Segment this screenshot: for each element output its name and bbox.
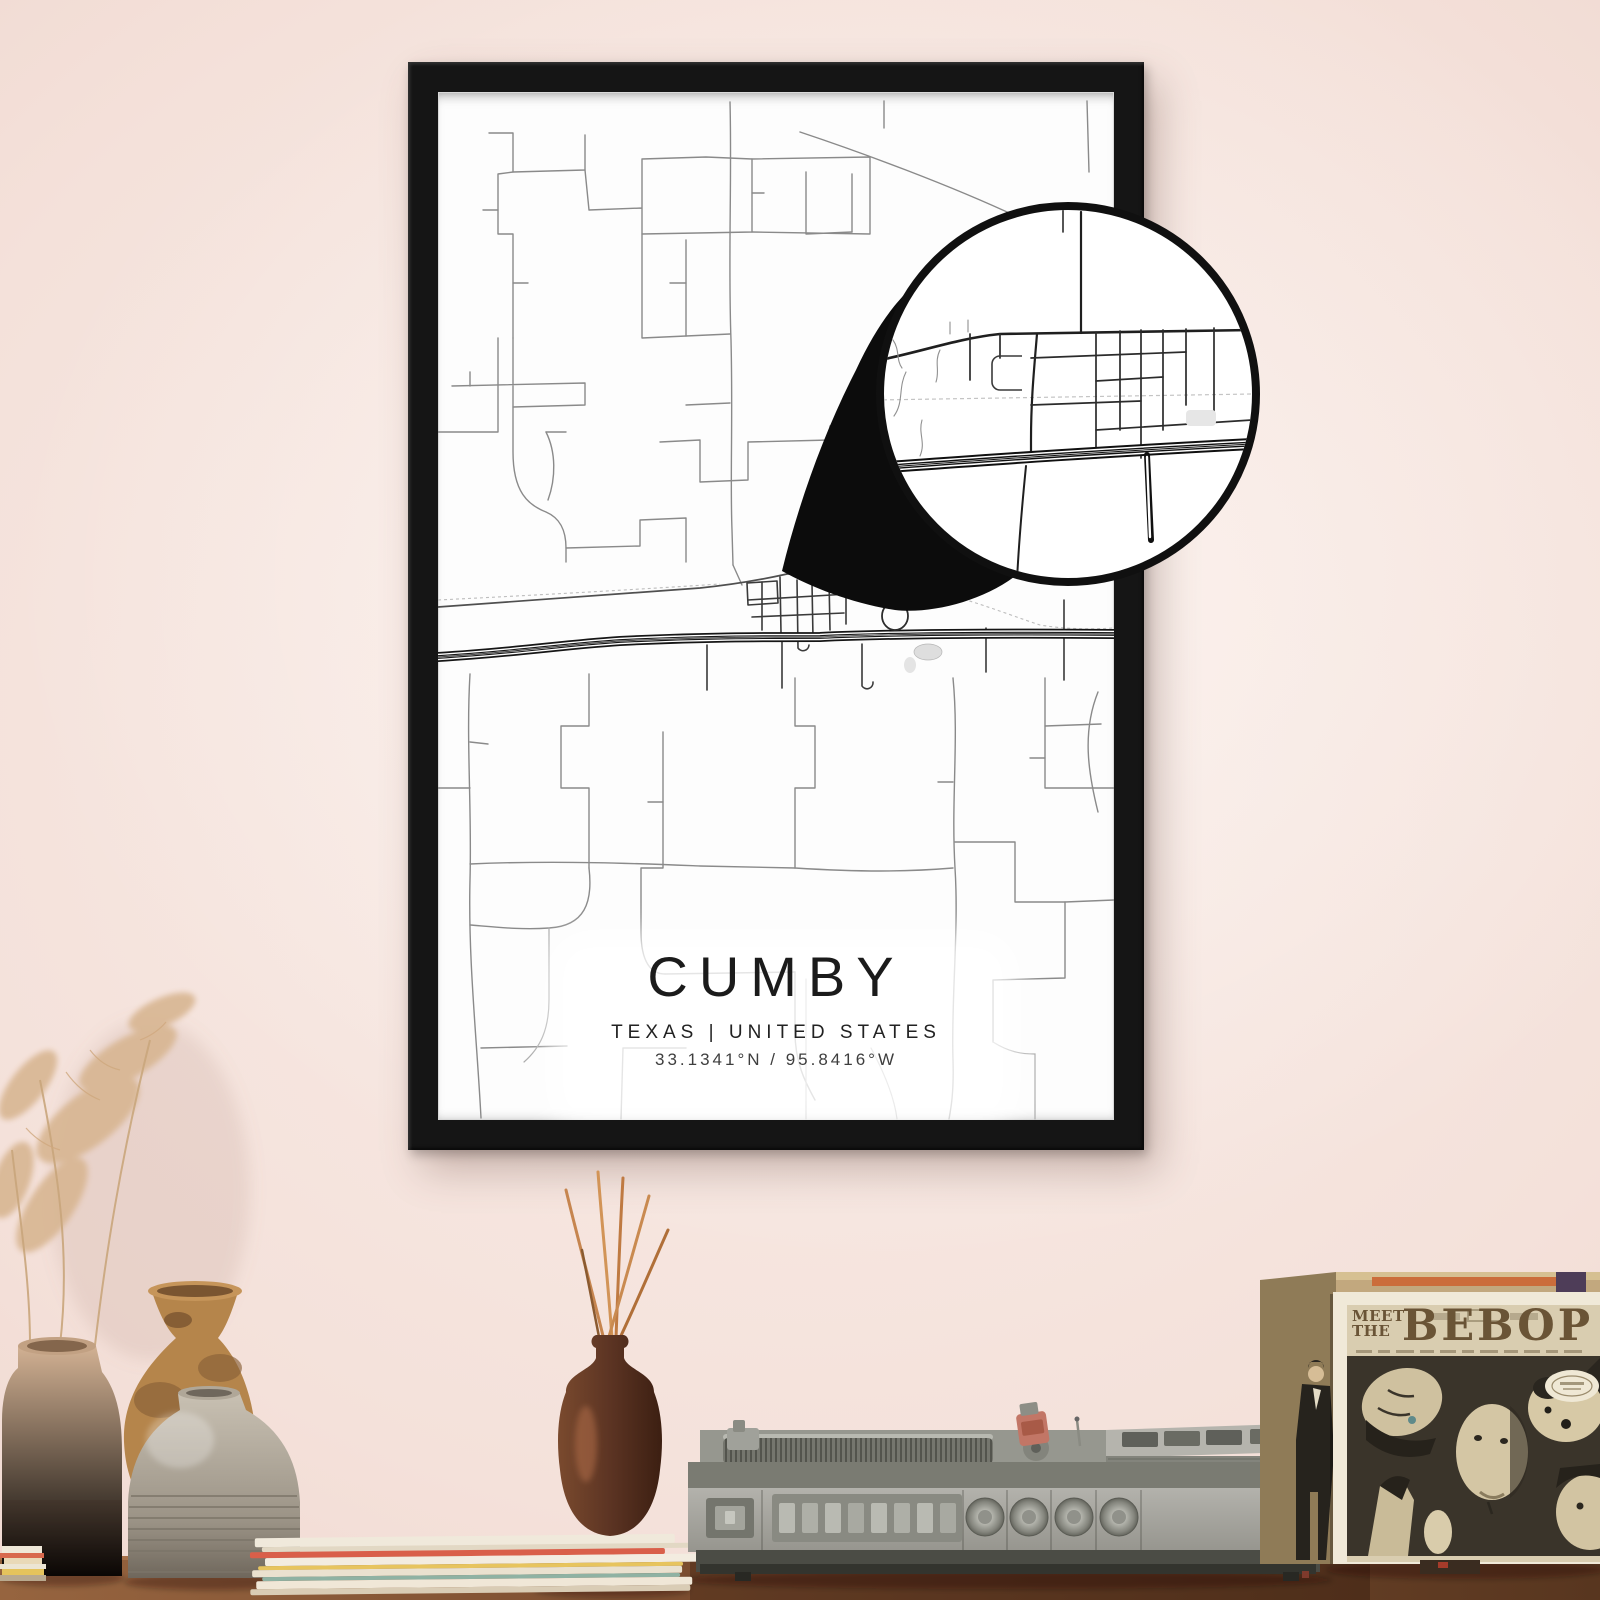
- dog-face-topright: [1528, 1358, 1600, 1442]
- room-wall: CUMBY TEXAS | UNITED STATES 33.1341°N / …: [0, 0, 1600, 1600]
- tonearm: [1014, 1401, 1050, 1461]
- cat-face-center: [1456, 1404, 1528, 1514]
- purple-spine: [1556, 1272, 1586, 1292]
- sleeve-photo: [1347, 1356, 1600, 1556]
- floor-clutter: [1420, 1560, 1480, 1574]
- highway-railroad: [438, 634, 1114, 657]
- wall-shadow: [50, 1020, 250, 1360]
- sleeve-meet-the-label: MEET THE: [1352, 1309, 1405, 1339]
- crate-figure: [1296, 1360, 1334, 1560]
- preset-buttons: [772, 1494, 962, 1542]
- reed-diffuser: [558, 1172, 668, 1536]
- cassette-unit: [1106, 1424, 1296, 1466]
- poster-title: CUMBY: [438, 944, 1114, 1009]
- pampas-grass: [0, 985, 201, 1345]
- sleeve-the-line: THE: [1352, 1324, 1405, 1339]
- control-knobs: [966, 1498, 1138, 1536]
- panel-seams: [762, 1490, 1295, 1550]
- turntable-platter: [723, 1434, 993, 1464]
- orange-spine: [1372, 1277, 1566, 1286]
- diffuser-bottle: [558, 1335, 662, 1536]
- interchange-loop: [882, 602, 908, 630]
- cat-face-bottomright: [1556, 1464, 1600, 1550]
- power-button: [706, 1498, 754, 1538]
- cat-face-topleft: [1352, 1357, 1452, 1457]
- cabinet-top-strip: [688, 1462, 1328, 1490]
- paper-stack-left: [0, 1546, 46, 1581]
- vase-tall-beige: [2, 1337, 122, 1576]
- magazine-stack: [250, 1534, 701, 1596]
- cue-lever: [727, 1420, 759, 1450]
- record-player: [688, 1401, 1328, 1581]
- sleeve-badge: [1545, 1370, 1599, 1402]
- contact-shadows: [0, 1561, 1600, 1597]
- vase-gray-ribbed: [128, 1386, 300, 1578]
- poster-coordinates: 33.1341°N / 95.8416°W: [438, 1050, 1114, 1070]
- inset-pond: [1186, 410, 1216, 426]
- poster-frame: CUMBY TEXAS | UNITED STATES 33.1341°N / …: [408, 62, 1144, 1150]
- business-route: [438, 571, 870, 607]
- figure-bottomleft: [1368, 1476, 1452, 1556]
- diffuser-reeds: [566, 1172, 668, 1342]
- vase-amber: [124, 1281, 257, 1518]
- cabinet-base: [696, 1550, 1320, 1581]
- poster-paper: CUMBY TEXAS | UNITED STATES 33.1341°N / …: [438, 92, 1114, 1120]
- table-surface: [0, 1556, 1600, 1600]
- pond: [904, 644, 942, 673]
- sleeve-album-title: BEBOP: [1402, 1301, 1593, 1351]
- poster-subtitle: TEXAS | UNITED STATES: [438, 1022, 1114, 1044]
- turntable-deck: [700, 1430, 1120, 1464]
- cabinet-front: [688, 1488, 1328, 1552]
- antenna: [1075, 1417, 1081, 1447]
